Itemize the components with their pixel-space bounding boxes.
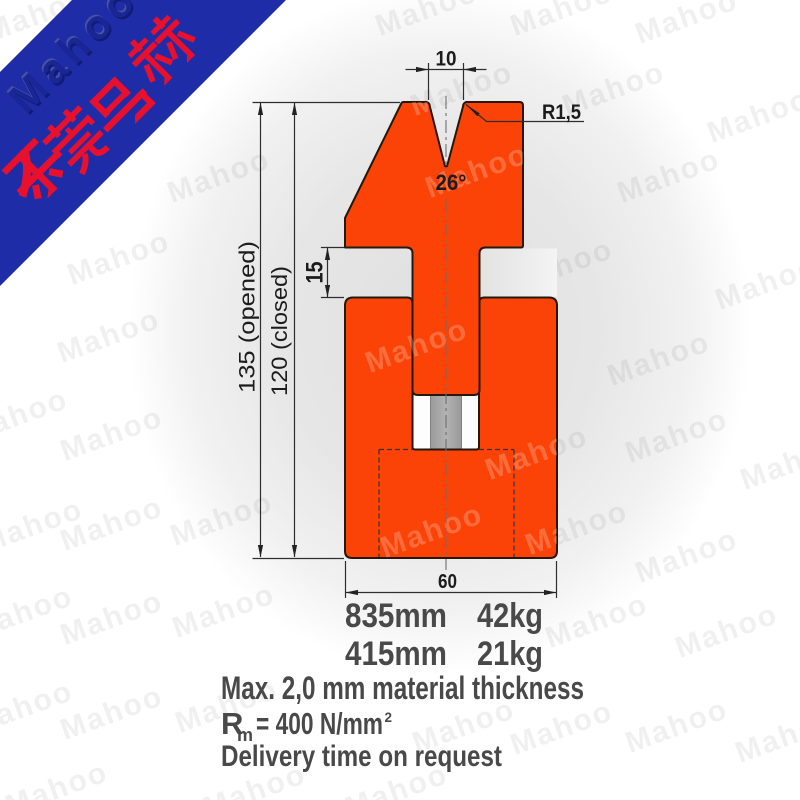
svg-text:10: 10 xyxy=(436,47,457,71)
svg-text:21kg: 21kg xyxy=(477,635,543,673)
svg-text:Delivery time on request: Delivery time on request xyxy=(221,740,502,773)
svg-text:415mm: 415mm xyxy=(345,635,447,673)
svg-text:835mm: 835mm xyxy=(345,597,447,635)
svg-text:26°: 26° xyxy=(436,170,467,195)
svg-text:120 (closed): 120 (closed) xyxy=(267,266,292,396)
svg-text:60: 60 xyxy=(438,570,457,593)
svg-text:R1,5: R1,5 xyxy=(542,100,581,124)
svg-text:= 400 N/mm: = 400 N/mm xyxy=(256,706,383,741)
svg-text:2: 2 xyxy=(385,710,393,725)
svg-text:15: 15 xyxy=(302,262,329,284)
svg-text:42kg: 42kg xyxy=(477,597,543,635)
svg-text:Max. 2,0 mm material thickness: Max. 2,0 mm material thickness xyxy=(221,670,584,706)
svg-text:135 (opened): 135 (opened) xyxy=(235,241,260,393)
